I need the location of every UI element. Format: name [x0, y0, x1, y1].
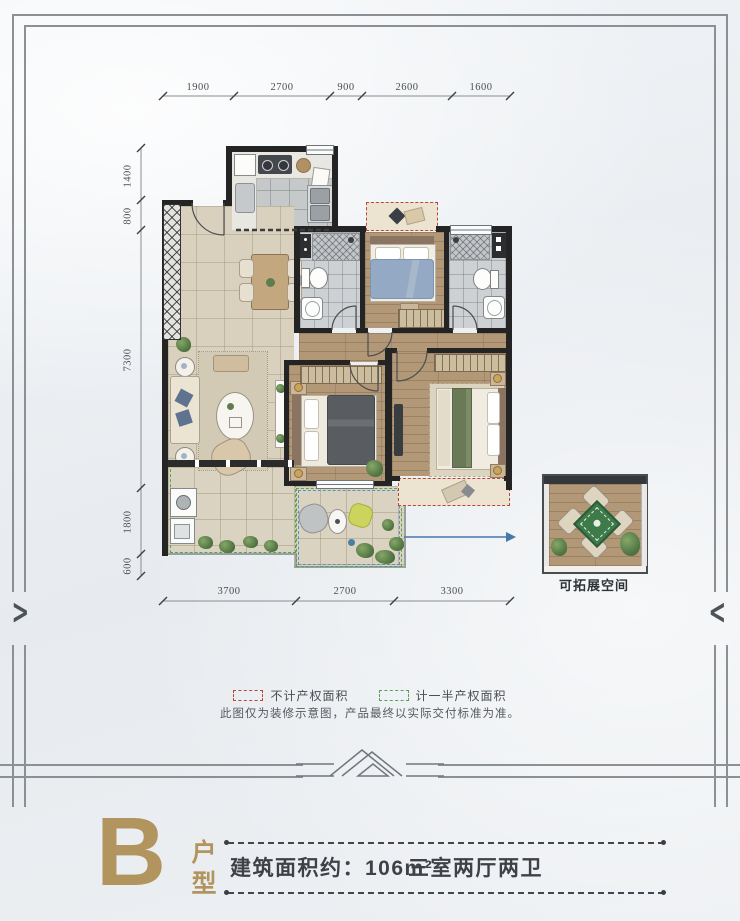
dim-bottom: 3300 — [441, 586, 464, 597]
dim-left: 1800 — [123, 511, 134, 534]
title-dashed-line — [228, 842, 664, 844]
pillow — [487, 392, 500, 424]
duvet — [370, 259, 434, 299]
plant — [219, 540, 235, 553]
side-table — [175, 357, 195, 377]
frame-line — [714, 25, 716, 592]
burner — [262, 160, 273, 171]
washing-machine — [170, 488, 197, 517]
legend-red-label: 不计产权面积 — [270, 687, 348, 704]
basin — [487, 300, 502, 316]
bench — [213, 355, 249, 372]
wall — [385, 348, 392, 486]
plant — [551, 538, 567, 556]
unit-type-label: 户型 — [184, 839, 220, 901]
frame-line — [12, 14, 14, 592]
patio-table — [328, 509, 347, 534]
window — [316, 480, 374, 489]
wall — [444, 226, 449, 332]
wall — [356, 328, 368, 333]
double-sink — [307, 185, 333, 223]
wall — [284, 481, 320, 486]
disclaimer-note: 此图仅为装修示意图，产品最终以实际交付标准为准。 — [0, 705, 740, 721]
dim-top: 2600 — [396, 82, 419, 93]
master-bay-window — [398, 478, 510, 506]
basin — [174, 524, 190, 539]
sofa — [170, 376, 200, 444]
wall — [392, 476, 400, 481]
expandable-space-detail — [542, 474, 648, 574]
dash-end-dot — [661, 890, 666, 895]
wall — [284, 360, 289, 486]
dash-end-dot — [224, 840, 229, 845]
washbasin — [301, 297, 323, 320]
dim-top: 1600 — [470, 82, 493, 93]
wall — [504, 476, 512, 481]
pillow — [304, 399, 319, 429]
plant — [356, 543, 374, 558]
decor — [181, 453, 187, 459]
wall — [223, 200, 232, 206]
throw-blanket — [404, 207, 426, 225]
wardrobe — [434, 354, 506, 372]
expandable-space-label: 可拓展空间 — [534, 575, 654, 594]
decor — [229, 417, 242, 428]
legend-red-swatch — [233, 690, 263, 701]
dining-chair — [239, 259, 254, 278]
frame-line — [714, 645, 716, 807]
bedroom2-bay-window — [366, 202, 438, 231]
burner — [278, 160, 289, 171]
wall — [392, 328, 453, 333]
wall — [544, 476, 646, 484]
plant — [243, 536, 258, 548]
kitchen-sink — [235, 183, 255, 213]
bed-headboard — [370, 236, 434, 244]
plant — [375, 550, 395, 564]
vent — [496, 237, 501, 242]
dim-bottom: 3700 — [218, 586, 241, 597]
frame-line — [12, 645, 14, 807]
toilet — [309, 267, 328, 289]
washer-drum — [176, 495, 191, 510]
balcony-sliding-door — [168, 460, 294, 467]
shaft-hatch — [163, 204, 181, 340]
plant — [366, 460, 383, 477]
fridge — [234, 154, 256, 176]
duvet — [327, 395, 375, 465]
frame-line — [0, 764, 303, 766]
decor — [181, 363, 187, 369]
frame-line — [24, 25, 26, 592]
shaft-box — [492, 233, 506, 258]
wall — [360, 226, 365, 332]
toilet — [490, 270, 499, 289]
plant — [389, 537, 404, 551]
wardrobe — [398, 309, 446, 328]
frame-line — [12, 14, 728, 16]
tray — [296, 158, 311, 173]
dash-end-dot — [224, 890, 229, 895]
plant — [198, 536, 213, 549]
dim-top: 1900 — [187, 82, 210, 93]
throw-blanket — [452, 388, 472, 468]
wall — [477, 328, 512, 333]
faucet — [304, 248, 307, 251]
bottle — [335, 519, 340, 524]
frame-line — [726, 645, 728, 807]
bed-headboard — [292, 395, 301, 465]
pillow — [487, 424, 500, 456]
plant — [382, 519, 394, 531]
basin — [305, 301, 320, 317]
window — [450, 225, 492, 235]
floor-plan-poster: { "poster": { "dimensions": { "top": ["1… — [0, 0, 740, 921]
chevron-left-icon: < — [708, 592, 726, 632]
frame-line — [0, 776, 303, 778]
coffee-table — [216, 392, 254, 440]
laundry-sink — [170, 518, 195, 544]
sofa-cushion — [175, 389, 194, 408]
frame-line — [24, 645, 26, 807]
wall — [226, 146, 232, 206]
washbasin — [483, 296, 505, 319]
window-frame — [641, 484, 647, 566]
frame-line — [438, 764, 740, 766]
wall — [332, 146, 338, 232]
rooms-text: 三室两厅两卫 — [408, 852, 543, 882]
dim-left: 600 — [123, 557, 134, 574]
lamp — [294, 383, 303, 392]
dim-bottom: 2700 — [334, 586, 357, 597]
tv-stand — [394, 404, 403, 456]
bath-cabinet — [300, 234, 311, 258]
decor — [348, 539, 355, 546]
wardrobe — [300, 366, 382, 384]
wall — [294, 328, 332, 333]
shower-head — [348, 237, 354, 243]
title-dashed-line — [228, 892, 664, 894]
dim-left: 7300 — [123, 349, 134, 372]
wall — [294, 226, 300, 332]
legend-green-label: 计一半产权面积 — [416, 687, 507, 704]
decor — [227, 403, 234, 410]
dining-chair — [239, 283, 254, 302]
extension-arrow — [404, 532, 516, 542]
legend-green-swatch — [379, 690, 409, 701]
lamp — [493, 374, 502, 383]
unit-letter: B — [96, 806, 166, 898]
cushion — [389, 208, 406, 225]
sofa-cushion — [175, 409, 193, 427]
balcony-railing — [168, 553, 296, 555]
lamp — [493, 466, 502, 475]
frame-line — [438, 776, 740, 778]
sink-basin — [310, 188, 330, 204]
shower-head — [453, 237, 459, 243]
pillow — [304, 431, 319, 461]
lamp — [294, 469, 303, 478]
legend: 不计产权面积 计一半产权面积 — [0, 687, 740, 704]
dim-top: 2700 — [271, 82, 294, 93]
wall — [427, 348, 512, 353]
dim-left: 1400 — [123, 165, 134, 188]
centerpiece-plant — [266, 278, 275, 287]
blanket — [438, 390, 450, 466]
dining-table — [251, 254, 289, 310]
plant — [620, 532, 640, 556]
wall — [284, 360, 350, 365]
wall — [294, 226, 366, 232]
faucet — [304, 238, 307, 241]
window — [306, 145, 334, 155]
vent — [496, 246, 501, 251]
frame-line — [726, 14, 728, 592]
plant — [264, 540, 278, 552]
dim-top: 900 — [337, 82, 354, 93]
mountain-motif — [296, 742, 444, 782]
frame-line — [24, 25, 716, 27]
sink-basin — [310, 205, 330, 221]
wall — [506, 226, 512, 490]
stove — [258, 155, 292, 174]
area-text: 建筑面积约：106m² — [230, 852, 433, 882]
chevron-right-icon: > — [11, 592, 29, 632]
dash-end-dot — [661, 840, 666, 845]
dim-left: 800 — [123, 207, 134, 224]
